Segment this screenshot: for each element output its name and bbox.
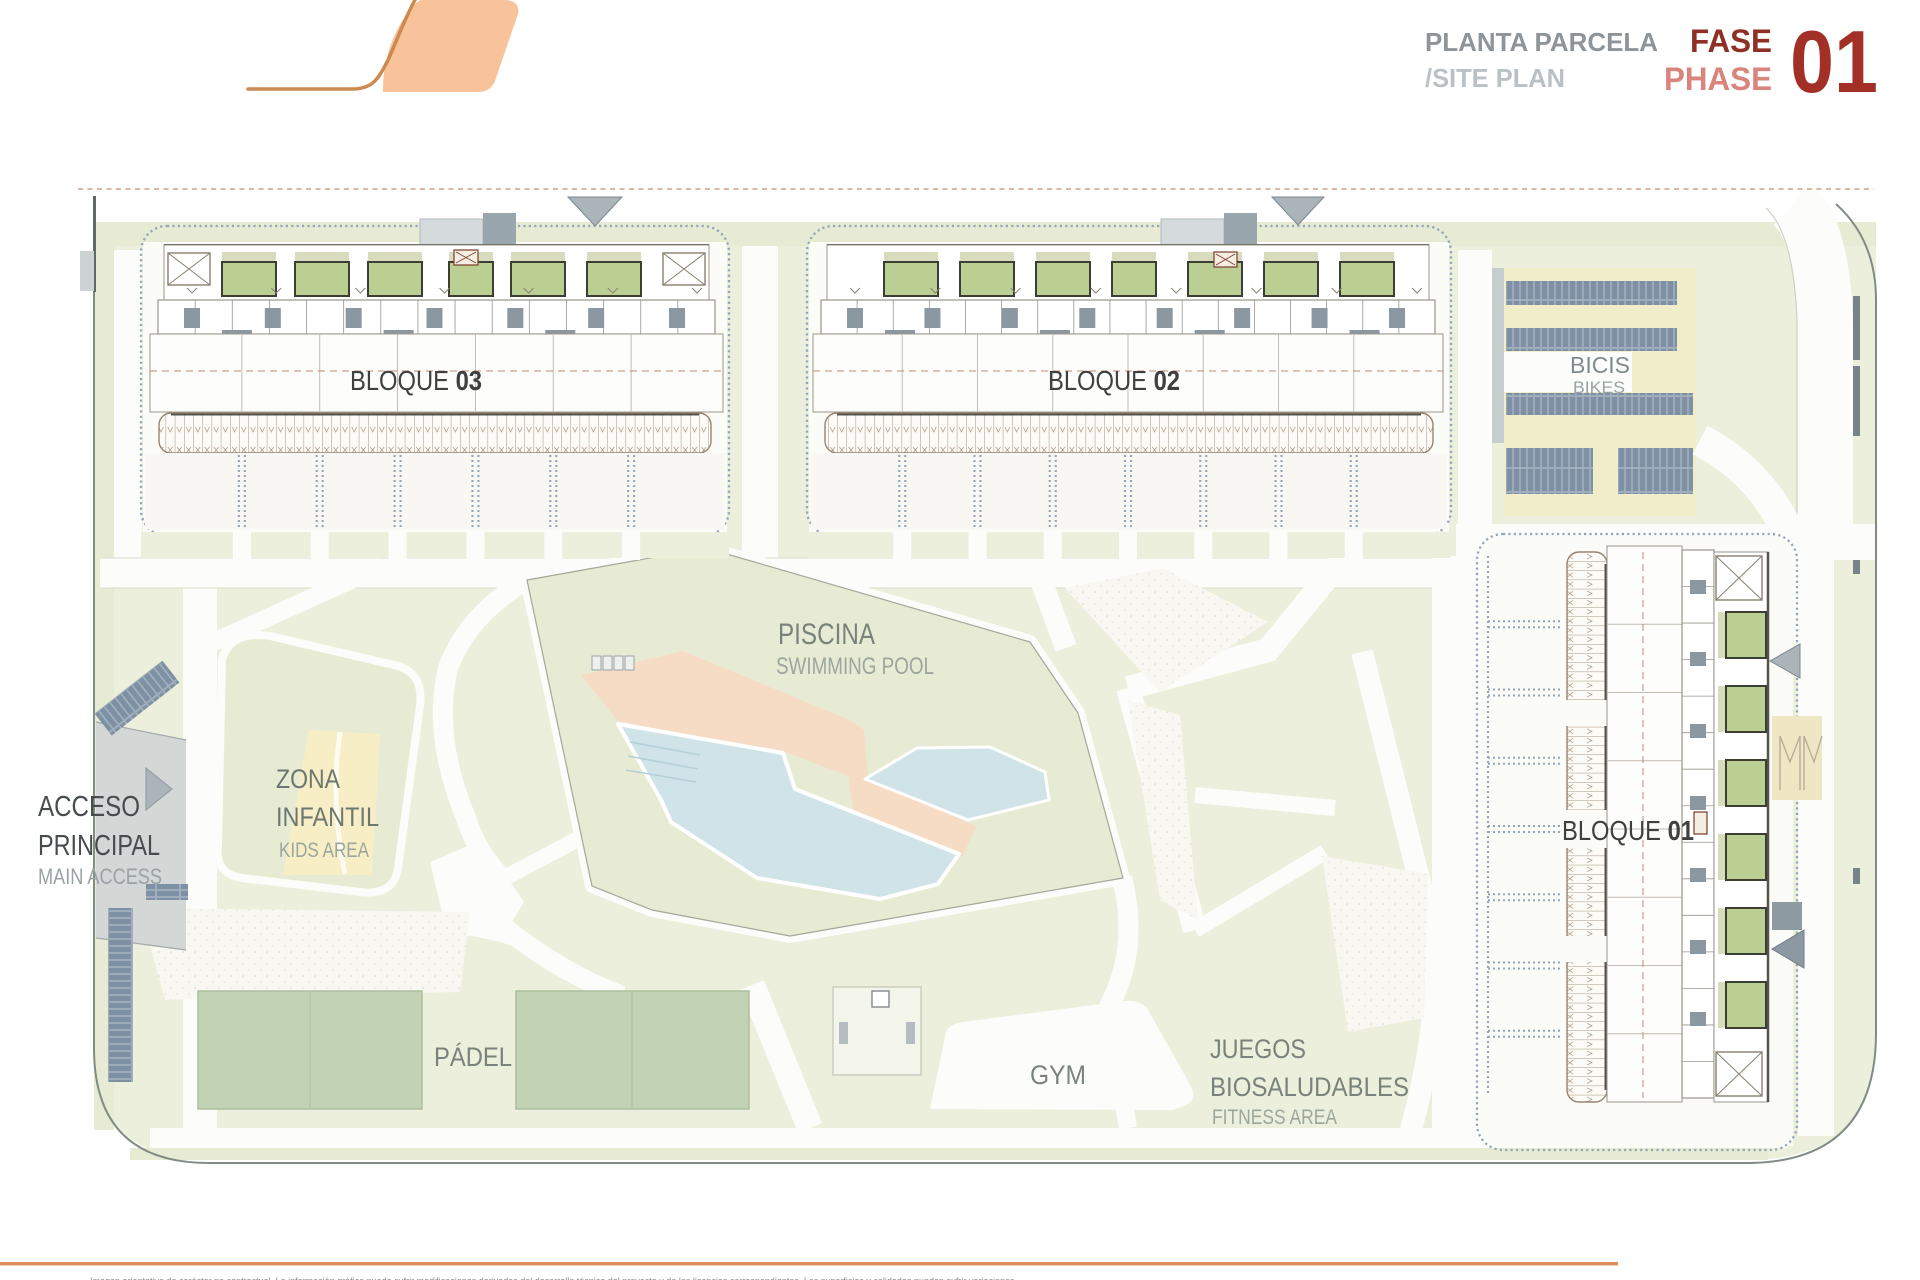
- svg-text:FASE: FASE: [1690, 23, 1772, 59]
- svg-text:INFANTIL: INFANTIL: [276, 802, 379, 832]
- svg-text:Imagen orientativa de carácter: Imagen orientativa de carácter no contra…: [90, 1276, 1017, 1280]
- svg-text:ZONA: ZONA: [276, 764, 340, 794]
- svg-text:/SITE PLAN: /SITE PLAN: [1425, 63, 1565, 93]
- svg-text:ACCESO: ACCESO: [38, 791, 140, 823]
- svg-text:PLANTA PARCELA: PLANTA PARCELA: [1425, 27, 1658, 57]
- svg-text:PISCINA: PISCINA: [778, 618, 875, 651]
- svg-text:PRINCIPAL: PRINCIPAL: [38, 830, 160, 862]
- svg-text:BLOQUE 01: BLOQUE 01: [1562, 815, 1694, 846]
- svg-text:JUEGOS: JUEGOS: [1210, 1034, 1306, 1064]
- svg-text:BICIS: BICIS: [1570, 352, 1630, 378]
- svg-text:FITNESS AREA: FITNESS AREA: [1212, 1106, 1337, 1129]
- svg-text:KIDS AREA: KIDS AREA: [279, 839, 369, 862]
- svg-text:SWIMMING POOL: SWIMMING POOL: [776, 653, 934, 680]
- svg-text:BLOQUE 03: BLOQUE 03: [350, 365, 482, 396]
- svg-text:PÁDEL: PÁDEL: [434, 1042, 512, 1072]
- svg-text:PHASE: PHASE: [1664, 61, 1772, 97]
- svg-text:BLOQUE 02: BLOQUE 02: [1048, 365, 1180, 396]
- svg-text:01: 01: [1790, 12, 1878, 111]
- svg-text:MAIN ACCESS: MAIN ACCESS: [38, 864, 162, 889]
- svg-text:GYM: GYM: [1030, 1060, 1086, 1090]
- svg-text:BIKES: BIKES: [1573, 378, 1625, 397]
- svg-text:BIOSALUDABLES: BIOSALUDABLES: [1210, 1072, 1409, 1102]
